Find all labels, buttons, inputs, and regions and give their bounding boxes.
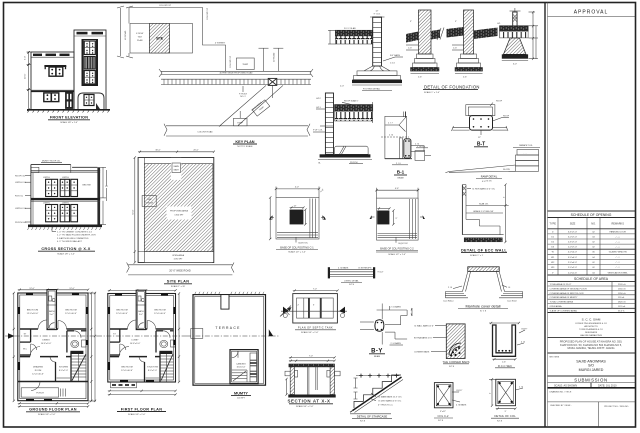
- svg-text:8'-0"x7'-0": 8'-0"x7'-0": [59, 370, 69, 372]
- svg-text:SCALE: AS SHOWN: SCALE: AS SHOWN: [554, 384, 577, 387]
- svg-text:1170 sft: 1170 sft: [618, 305, 626, 308]
- svg-text:2'-0": 2'-0": [340, 86, 344, 88]
- svg-text:30'-0": 30'-0": [155, 150, 161, 152]
- svg-text:BED ROOM: BED ROOM: [65, 310, 77, 312]
- svg-text:12": 12": [478, 137, 481, 139]
- svg-text:N.T.S: N.T.S: [438, 420, 444, 422]
- svg-text:N.T.S: N.T.S: [486, 180, 492, 182]
- svg-text:BATH: BATH: [49, 310, 55, 313]
- svg-text:SLAB LVL: SLAB LVL: [479, 202, 489, 205]
- svg-text:4 #4 BARS: 4 #4 BARS: [338, 266, 349, 269]
- svg-text:#4 HOR BARS @ 4" O/C: #4 HOR BARS @ 4" O/C: [472, 188, 496, 191]
- svg-text:S. C. C. SIAM: S. C. C. SIAM: [582, 318, 601, 322]
- svg-text:4'-0"x4'-0": 4'-0"x4'-0": [568, 252, 578, 254]
- svg-text:2'-6": 2'-6": [463, 77, 467, 79]
- svg-text:LINTEL: LINTEL: [62, 177, 70, 179]
- svg-text:OPEN AREA: OPEN AREA: [550, 305, 563, 308]
- svg-text:SITE: SITE: [156, 37, 163, 41]
- svg-text:TILE: TILE: [138, 37, 143, 39]
- svg-text:1350 sft: 1350 sft: [618, 292, 626, 295]
- svg-text:PLINTH LVL: PLINTH LVL: [15, 222, 27, 224]
- svg-text:12": 12": [293, 206, 296, 208]
- svg-text:SCALE 1" = 1'-0": SCALE 1" = 1'-0": [424, 91, 440, 94]
- svg-text:2520 sft: 2520 sft: [618, 283, 626, 286]
- svg-text:N.T.S: N.T.S: [497, 420, 503, 422]
- svg-text:-"- -"-: -"- -"-: [615, 242, 620, 244]
- svg-text:COL C-2: COL C-2: [438, 414, 449, 418]
- svg-text:SLOPE: SLOPE: [503, 169, 511, 171]
- svg-text:CHECKED BY / SIGN :: CHECKED BY / SIGN :: [550, 405, 572, 407]
- svg-text:12'-0"x10'-6": 12'-0"x10'-6": [121, 370, 133, 372]
- svg-text:NO. 2: NO. 2: [240, 96, 246, 98]
- svg-text:#3@9": #3@9": [521, 329, 528, 331]
- svg-text:12'-0"x10'-0": 12'-0"x10'-0": [27, 313, 39, 315]
- svg-text:K ROW: K ROW: [136, 33, 143, 35]
- svg-text:BASE OF COL FOOTING C-1: BASE OF COL FOOTING C-1: [280, 247, 314, 250]
- svg-text:SCALE 1" = 1': SCALE 1" = 1': [470, 254, 484, 257]
- svg-text:4'-0": 4'-0": [295, 187, 299, 189]
- svg-text:10'-6"x9'-0": 10'-6"x9'-0": [130, 343, 141, 345]
- svg-text:STUDY RM: STUDY RM: [147, 367, 158, 369]
- svg-text:ROOF LVL: ROOF LVL: [15, 176, 26, 178]
- svg-text:PROPOSED AREA: PROPOSED AREA: [170, 210, 189, 213]
- svg-text:1350 SFT: 1350 SFT: [174, 215, 184, 217]
- svg-text:2'-6": 2'-6": [418, 77, 422, 79]
- svg-text:SCALE 1/2" = 1'-0": SCALE 1/2" = 1'-0": [288, 251, 306, 254]
- svg-text:LAHORE RAWALPINDI: LAHORE RAWALPINDI: [580, 334, 602, 337]
- svg-text:TERRACE: TERRACE: [215, 326, 240, 330]
- svg-text:#3 STIRRUPS: #3 STIRRUPS: [358, 267, 372, 269]
- svg-text:CONSULTING ENGINEERS & CO: CONSULTING ENGINEERS & CO: [575, 323, 607, 325]
- svg-text:SUBMISSION: SUBMISSION: [574, 377, 608, 382]
- svg-text:9": 9": [505, 411, 507, 413]
- svg-text:FOOTING DETAIL: FOOTING DETAIL: [363, 88, 381, 91]
- svg-text:4' STREET: 4' STREET: [215, 43, 226, 45]
- svg-text:DRAWING: DRAWING: [33, 366, 43, 369]
- svg-text:FLR LVL: FLR LVL: [15, 196, 24, 198]
- svg-text:GLAZED WINDOW: GLAZED WINDOW: [609, 251, 627, 254]
- svg-text:BED ROOM: BED ROOM: [154, 310, 166, 312]
- svg-text:MAIN: MAIN: [174, 165, 180, 168]
- svg-text:N.T.S: N.T.S: [449, 366, 455, 368]
- svg-text:20' ROAD: 20' ROAD: [273, 52, 276, 62]
- svg-text:#4 MAIN BARS @ 4" O/C: #4 MAIN BARS @ 4" O/C: [378, 396, 402, 399]
- svg-text:SCALE 1/4" = 1'-0": SCALE 1/4" = 1'-0": [296, 405, 314, 408]
- svg-text:KHATOON NO. 50, KHASRA NO 504: KHATOON NO. 50, KHASRA NO 504 KHASRA NO …: [560, 343, 622, 347]
- svg-text:40 FEET WIDE PROPOSED ROAD: 40 FEET WIDE PROPOSED ROAD: [219, 72, 253, 75]
- svg-text:EXTRA BARS @ 6": EXTRA BARS @ 6": [414, 337, 432, 340]
- svg-text:12'-0"x10'-6": 12'-0"x10'-6": [32, 374, 44, 376]
- svg-text:Cast Steel: Cast Steel: [507, 300, 517, 303]
- svg-text:CAR: CAR: [147, 198, 152, 201]
- svg-text:FRONT ELEVATION: FRONT ELEVATION: [50, 116, 88, 120]
- svg-text:BED ROOM: BED ROOM: [27, 310, 39, 312]
- svg-text:PLAN OF SEPTIC TANK: PLAN OF SEPTIC TANK: [298, 327, 333, 330]
- svg-text:Manhole cover detail: Manhole cover detail: [465, 304, 500, 308]
- svg-text:DRAWING NO. / TITLE :: DRAWING NO. / TITLE :: [550, 390, 573, 393]
- svg-text:. . .: . . .: [524, 153, 527, 155]
- svg-text:N.T.S: N.T.S: [349, 284, 355, 286]
- svg-text:9": 9": [410, 21, 412, 23]
- svg-text:70'-0": 70'-0": [133, 209, 135, 215]
- svg-text:9": 9": [396, 218, 398, 220]
- svg-text:4. 9" TH. BRICK BALLAST: 4. 9" TH. BRICK BALLAST: [57, 240, 82, 243]
- svg-text:S/O: S/O: [588, 364, 594, 368]
- svg-text:GATE: GATE: [173, 168, 179, 171]
- svg-text:PLAN: PLAN: [137, 39, 143, 42]
- svg-text:LINTEL: LINTEL: [62, 202, 70, 204]
- svg-text:3'-0"x4'-0": 3'-0"x4'-0": [568, 257, 578, 259]
- svg-text:SITE PLAN: SITE PLAN: [167, 280, 190, 284]
- svg-text:-"- -"-: -"- -"-: [615, 262, 620, 264]
- svg-text:100 SFT: 100 SFT: [237, 398, 246, 400]
- svg-text:BEAM: BEAM: [398, 176, 404, 179]
- svg-text:-"- -"-: -"- -"-: [615, 257, 620, 259]
- svg-text:MR / MRS: MR / MRS: [550, 357, 560, 359]
- svg-text:SECTION AT X-X: SECTION AT X-X: [287, 399, 330, 404]
- svg-text:12'-0"x10'-0": 12'-0"x10'-0": [154, 313, 166, 315]
- svg-text:LINTEL: LINTEL: [43, 202, 51, 204]
- svg-text:CORNER BARS: CORNER BARS: [414, 351, 430, 354]
- svg-text:1170 SFT: 1170 SFT: [174, 259, 184, 261]
- svg-text:PROPOSED PLAN OF HOUSE AT KHAS: PROPOSED PLAN OF HOUSE AT KHASRA NO. 550…: [560, 339, 623, 343]
- svg-text:MOZA JHANDA, TEHSIL DISTT. JHA: MOZA JHANDA, TEHSIL DISTT. JHANG: [568, 346, 615, 350]
- svg-text:SCALE 1/8" = 1'-0": SCALE 1/8" = 1'-0": [57, 253, 75, 256]
- svg-text:53.5 %: 53.5 %: [618, 311, 625, 313]
- svg-text:DATE: JUL 2010: DATE: JUL 2010: [598, 384, 617, 387]
- svg-text:2'-0"x1'-6": 2'-0"x1'-6": [568, 272, 578, 274]
- svg-text:NOT TO SCALE: NOT TO SCALE: [237, 145, 253, 148]
- svg-text:COLONY ST: COLONY ST: [230, 55, 232, 68]
- svg-text:PROJECT NO. / DRG NO.: PROJECT NO. / DRG NO.: [604, 406, 629, 408]
- svg-text:DETAIL OF COL: DETAIL OF COL: [494, 414, 516, 418]
- svg-text:APPROVAL: APPROVAL: [574, 10, 609, 16]
- svg-text:2820 sft: 2820 sft: [618, 301, 626, 304]
- svg-text:2 #4 BARS: 2 #4 BARS: [391, 305, 402, 308]
- svg-text:CROSS SECTION @ X-X: CROSS SECTION @ X-X: [41, 247, 90, 251]
- svg-text:SIZE: SIZE: [570, 223, 576, 226]
- svg-text:DINING: DINING: [42, 340, 50, 342]
- svg-text:12'-0": 12'-0": [69, 288, 75, 290]
- svg-text:DETAIL OF STAIRCASE: DETAIL OF STAIRCASE: [357, 415, 388, 419]
- svg-text:N.T.S: N.T.S: [360, 421, 366, 423]
- svg-text:ROOF: ROOF: [496, 101, 503, 103]
- svg-text:#4@6"O/C: #4@6"O/C: [298, 243, 309, 245]
- svg-text:1350 sft: 1350 sft: [618, 287, 626, 290]
- svg-text:N. T. S: N. T. S: [480, 311, 487, 313]
- svg-text:TOTAL AREA OF PLOT: TOTAL AREA OF PLOT: [550, 283, 573, 286]
- svg-text:DETAIL OF FOUNDATION: DETAIL OF FOUNDATION: [424, 84, 480, 89]
- svg-text:#4 WALL BARS @ 6": #4 WALL BARS @ 6": [414, 325, 434, 328]
- svg-text:-"- -"-: -"- -"-: [615, 236, 620, 238]
- svg-text:BED ROOM: BED ROOM: [121, 367, 133, 369]
- svg-text:12'-0": 12'-0": [29, 288, 35, 290]
- svg-text:DETAIL OF ECC WALL: DETAIL OF ECC WALL: [461, 248, 507, 252]
- svg-text:PANELED DOOR: PANELED DOOR: [610, 230, 627, 233]
- svg-text:THE CORNER BARS: THE CORNER BARS: [443, 360, 470, 364]
- svg-text:4 #6 BARS: 4 #6 BARS: [456, 404, 467, 407]
- svg-text:9"x12": 9"x12": [440, 411, 446, 413]
- svg-text:ROOM: ROOM: [35, 370, 42, 372]
- svg-text:20'-0" WIDE ROAD: 20'-0" WIDE ROAD: [169, 270, 191, 273]
- svg-text:COLONY ST: COLONY ST: [159, 5, 172, 7]
- svg-text:#3 DIST BARS @ 6" O/C: #3 DIST BARS @ 6" O/C: [378, 400, 402, 403]
- svg-text:COVERED AREA OF GROUND FLOOR: COVERED AREA OF GROUND FLOOR: [550, 287, 588, 290]
- svg-text:1'-6": 1'-6": [408, 48, 412, 50]
- svg-text:5'x7': 5'x7': [50, 314, 55, 316]
- svg-text:10'-6": 10'-6": [25, 73, 27, 79]
- svg-text:4" THICK R.C.C: 4" THICK R.C.C: [378, 405, 393, 407]
- svg-text:1. 4" TH. CEMENT CONCRETE 1:2:: 1. 4" TH. CEMENT CONCRETE 1:2:4: [57, 232, 93, 234]
- svg-text:3'-0": 3'-0": [513, 64, 517, 66]
- svg-text:COLONY ROAD: COLONY ROAD: [197, 130, 213, 133]
- svg-text:20'-0": 20'-0": [193, 150, 199, 152]
- svg-text:ROOF: ROOF: [503, 116, 510, 118]
- svg-text:5'x7': 5'x7': [139, 314, 144, 316]
- svg-text:TYPE: TYPE: [549, 223, 556, 226]
- svg-text:2'-6"x7'-0": 2'-6"x7'-0": [568, 242, 578, 244]
- svg-text:COLONY ST: COLONY ST: [207, 7, 209, 20]
- svg-text:BASE OF COL FOOTING C-2: BASE OF COL FOOTING C-2: [380, 247, 414, 250]
- svg-text:12'-0"x10'-0": 12'-0"x10'-0": [65, 313, 77, 315]
- svg-text:BED RM: BED RM: [82, 185, 90, 187]
- svg-text:KITCHEN: KITCHEN: [59, 367, 69, 369]
- svg-text:9'-0": 9'-0": [25, 56, 27, 60]
- svg-text:PORCH: PORCH: [145, 202, 153, 204]
- svg-text:R.C.C SEC: R.C.C SEC: [498, 364, 512, 368]
- svg-text:SCHEDULE OF AREA: SCHEDULE OF AREA: [574, 277, 609, 281]
- svg-text:VENTILATOR STEEL: VENTILATOR STEEL: [608, 271, 629, 274]
- svg-text:TEMP: TEMP: [242, 64, 248, 66]
- svg-text:LINTEL: LINTEL: [43, 177, 51, 179]
- svg-text:2'-0"x2'-0": 2'-0"x2'-0": [568, 267, 578, 269]
- svg-text:SCHEDULE OF OPENING: SCHEDULE OF OPENING: [571, 213, 612, 217]
- svg-text:W: W: [552, 252, 554, 254]
- svg-text:4'-0": 4'-0": [482, 181, 486, 183]
- svg-text:7'-0": 7'-0": [313, 288, 317, 290]
- svg-text:10'-6"x9'-0": 10'-6"x9'-0": [41, 343, 52, 345]
- svg-text:SCALE 1/2" = 1'-0": SCALE 1/2" = 1'-0": [388, 253, 406, 256]
- svg-text:LOBBY: LOBBY: [132, 340, 140, 342]
- svg-text:SCALE 1/8" = 1'-0": SCALE 1/8" = 1'-0": [128, 413, 146, 416]
- svg-text:-"- -"-: -"- -"-: [615, 267, 620, 269]
- svg-text:ROOF SLAB 5": ROOF SLAB 5": [344, 100, 359, 103]
- svg-text:9" COL: 9" COL: [374, 14, 382, 16]
- svg-text:2. 2" TH. SAND FILLING UNDER F: 2. 2" TH. SAND FILLING UNDER FLOOR: [57, 234, 96, 237]
- svg-text:SCALE 1/8" = 1'-0": SCALE 1/8" = 1'-0": [60, 121, 78, 124]
- svg-text:DESIGNERS: DESIGNERS: [585, 332, 598, 334]
- svg-text:SCALE 1/4" = 1'-0": SCALE 1/4" = 1'-0": [301, 331, 319, 334]
- svg-text:MUMTY: MUMTY: [234, 391, 248, 395]
- svg-text:12": 12": [375, 11, 378, 13]
- svg-text:PARAPET LVL: PARAPET LVL: [519, 144, 533, 147]
- svg-text:Cast Rebar: Cast Rebar: [443, 300, 454, 303]
- svg-text:ARCHITECTS: ARCHITECTS: [584, 325, 598, 328]
- svg-text:3'-6"x7'-0": 3'-6"x7'-0": [568, 231, 578, 233]
- svg-text:120 sft: 120 sft: [618, 296, 625, 299]
- svg-text:9"x9" COL: 9"x9" COL: [313, 130, 324, 132]
- svg-text:COVERED AREA OF FIRST FLOOR: COVERED AREA OF FIRST FLOOR: [550, 292, 585, 295]
- svg-text:BEAM: BEAM: [374, 355, 380, 358]
- svg-text:3/4" BARS: 3/4" BARS: [390, 54, 400, 57]
- svg-text:% AGE OF COVERED AREA: % AGE OF COVERED AREA: [550, 310, 578, 313]
- svg-text:2'-0"x7'-0": 2'-0"x7'-0": [568, 247, 578, 249]
- svg-text:R.C.C SLAB: R.C.C SLAB: [344, 27, 356, 30]
- svg-text:3. EARTH FILLING COMPACTED: 3. EARTH FILLING COMPACTED: [57, 237, 89, 240]
- svg-text:KEY PLAN: KEY PLAN: [235, 140, 254, 144]
- svg-text:OPEN AREA: OPEN AREA: [172, 254, 185, 257]
- svg-text:BED ROOM: BED ROOM: [116, 310, 128, 312]
- svg-text:12'-0"x10'-0": 12'-0"x10'-0": [116, 313, 128, 315]
- svg-text:40' ROAD: 40' ROAD: [124, 30, 127, 40]
- svg-text:#4@6"O/C: #4@6"O/C: [398, 243, 409, 245]
- svg-text:W.C: W.C: [23, 349, 27, 351]
- svg-text:10'x10'-6": 10'x10'-6": [236, 367, 245, 369]
- svg-text:9"x12": 9"x12": [378, 272, 384, 274]
- svg-text:LANDING: LANDING: [236, 363, 246, 366]
- svg-text:COVERED AREA OF MUMTY: COVERED AREA OF MUMTY: [550, 296, 579, 299]
- svg-text:2'-0"x4'-0": 2'-0"x4'-0": [568, 262, 578, 264]
- svg-text:TEMP: TEMP: [237, 122, 243, 124]
- svg-text:BATH: BATH: [138, 310, 144, 313]
- svg-text:SCALE 1/8" = 1'-0": SCALE 1/8" = 1'-0": [38, 413, 56, 416]
- svg-text:GRADE 1'-6" BELOW: GRADE 1'-6" BELOW: [473, 210, 493, 213]
- svg-text:7'-0": 7'-0": [309, 355, 313, 357]
- svg-text:NO.: NO.: [591, 223, 596, 226]
- svg-text:PORCH: PORCH: [36, 393, 44, 395]
- svg-text:9": 9": [455, 21, 457, 23]
- svg-text:SCALE 1" = 20': SCALE 1" = 20': [171, 285, 186, 288]
- svg-text:1'-6": 1'-6": [453, 48, 457, 50]
- svg-text:#3@9": #3@9": [456, 390, 463, 392]
- svg-text:TOWN PLANNERS & CO: TOWN PLANNERS & CO: [579, 328, 603, 331]
- svg-text:8'-0"x7'-0": 8'-0"x7'-0": [148, 370, 158, 372]
- svg-text:2' ROOF: 2' ROOF: [417, 146, 426, 148]
- svg-text:3'-0"x7'-0": 3'-0"x7'-0": [568, 236, 578, 238]
- svg-text:REMARKS: REMARKS: [612, 223, 625, 226]
- svg-text:MURGI JARED: MURGI JARED: [579, 368, 604, 372]
- svg-text:-"- -"-: -"- -"-: [615, 247, 620, 249]
- svg-text:TOTAL COVERED AREA: TOTAL COVERED AREA: [550, 301, 574, 304]
- svg-text:B-1: B-1: [397, 170, 405, 175]
- svg-text:FIRST FLOOR PLAN: FIRST FLOOR PLAN: [121, 407, 163, 411]
- svg-text:GROUND FLOOR PLAN: GROUND FLOOR PLAN: [29, 408, 77, 412]
- svg-text:4'-6": 4'-6": [395, 188, 399, 190]
- svg-text:RAMP DETAIL: RAMP DETAIL: [481, 176, 498, 179]
